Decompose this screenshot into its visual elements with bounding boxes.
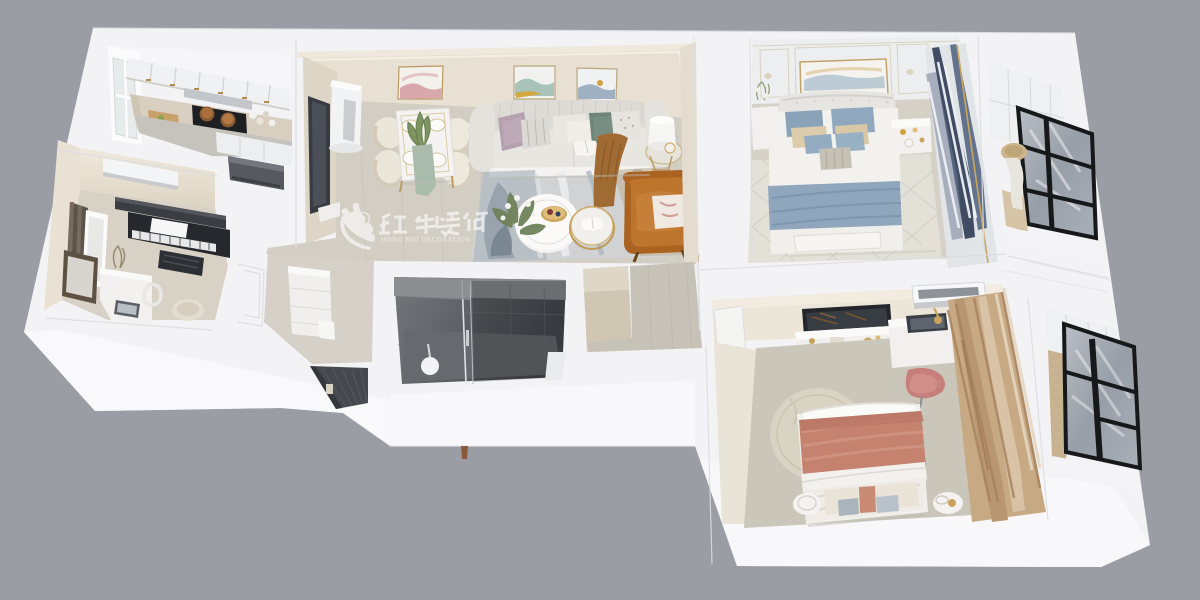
svg-text:HONG NIU DECORATION: HONG NIU DECORATION: [381, 237, 471, 244]
svg-text:R: R: [360, 215, 366, 224]
